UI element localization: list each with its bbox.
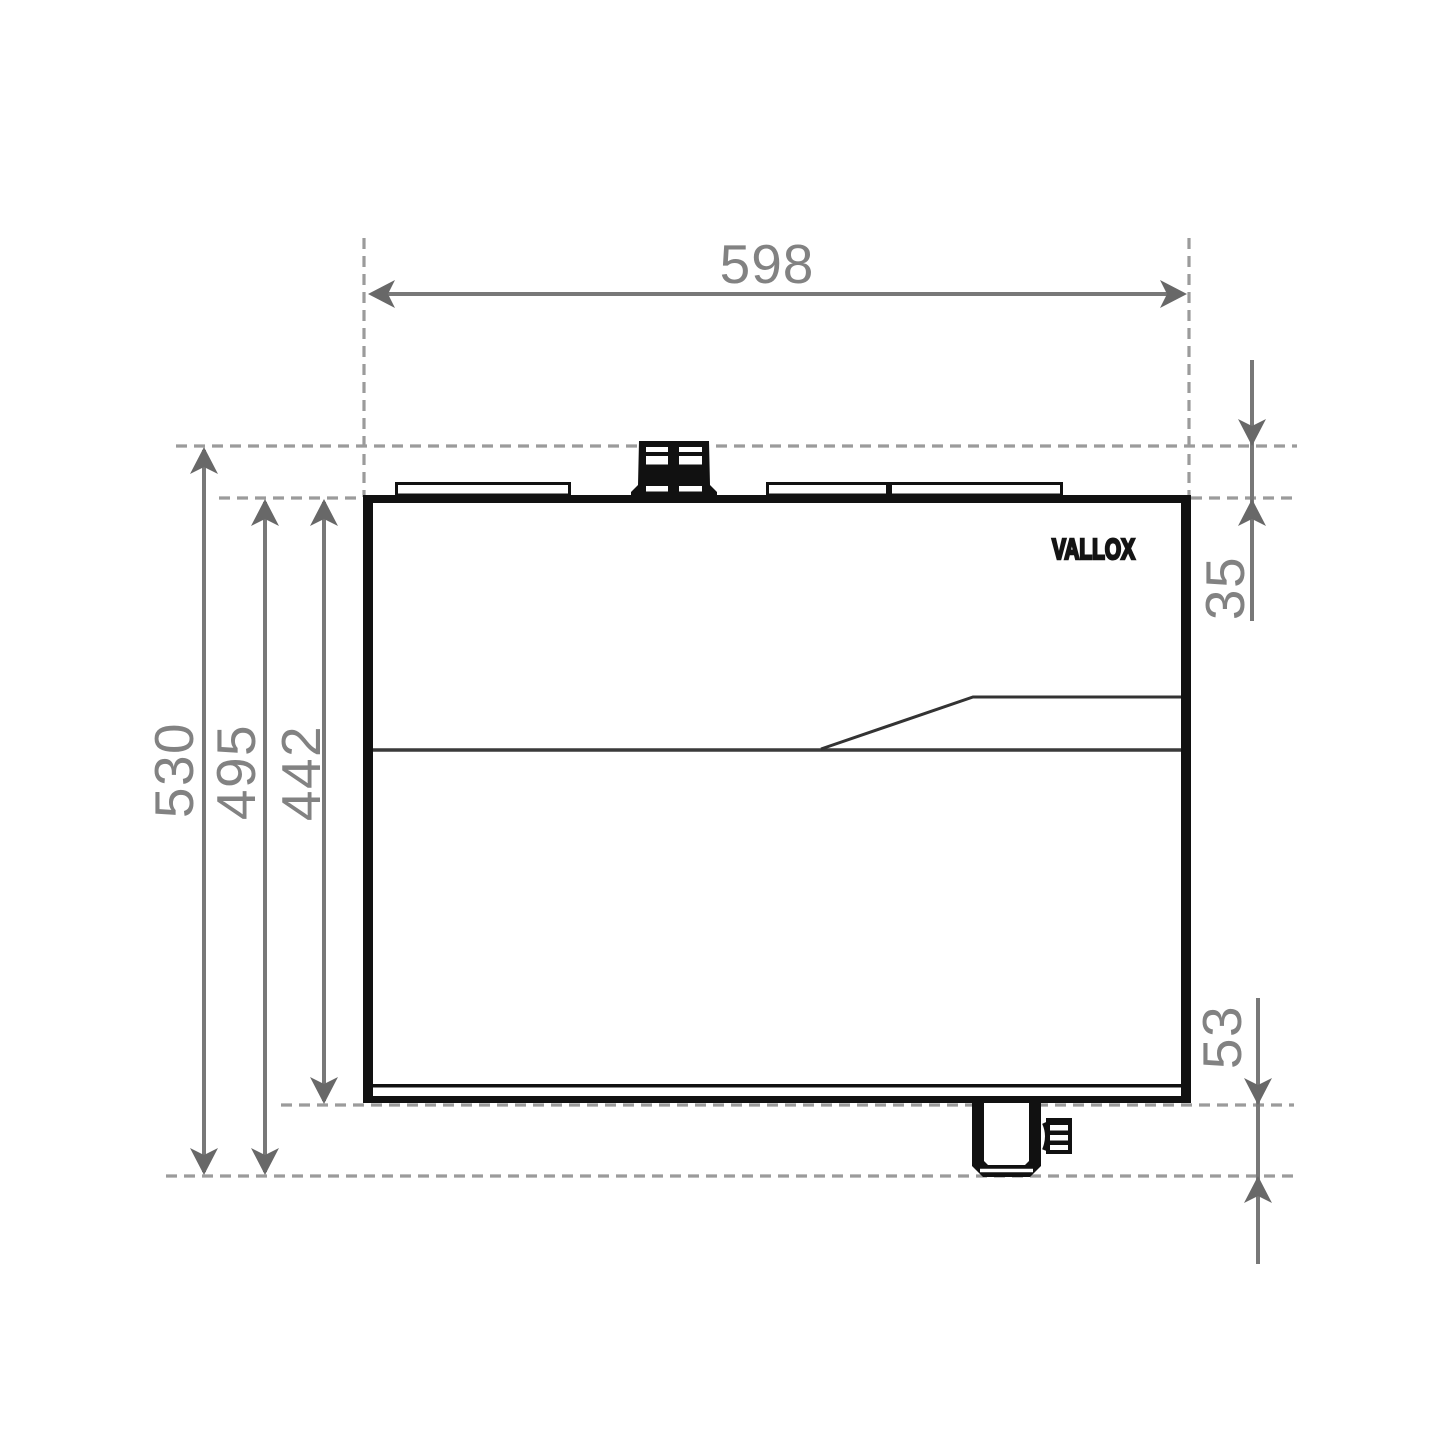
svg-text:53: 53 (1191, 1005, 1253, 1069)
svg-text:598: 598 (720, 233, 815, 295)
svg-text:530: 530 (143, 722, 205, 818)
svg-text:495: 495 (205, 724, 267, 820)
svg-text:442: 442 (270, 725, 332, 821)
svg-text:VALLOX: VALLOX (1052, 534, 1135, 566)
svg-text:35: 35 (1194, 556, 1256, 620)
